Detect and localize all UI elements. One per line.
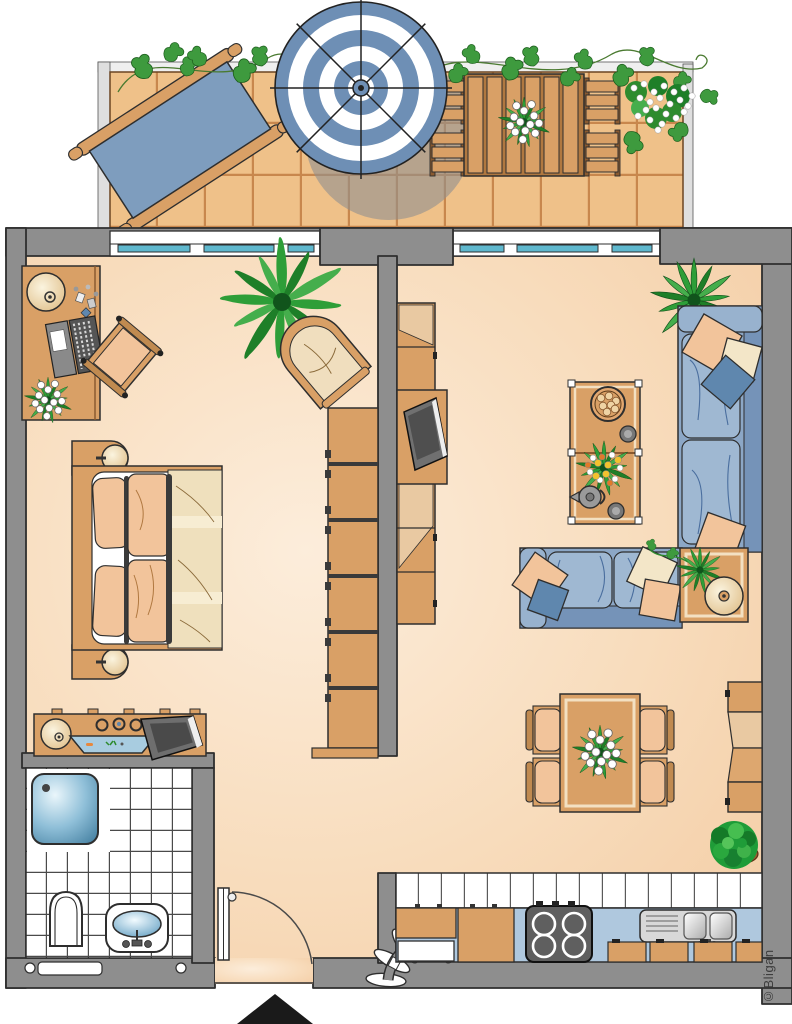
- floorplan-svg: [0, 0, 792, 1024]
- washbasin: [106, 904, 168, 952]
- cup: [608, 503, 624, 519]
- aquarium: [70, 736, 156, 753]
- copyright-text: ©Bligan: [761, 892, 776, 1004]
- wall-divider: [378, 256, 397, 756]
- round-bush-plant: [710, 821, 758, 869]
- wall-bottom-left: [6, 958, 215, 988]
- parasol: [270, 0, 452, 179]
- dresser-knobs: [97, 719, 142, 731]
- tile-backsplash: [396, 873, 762, 908]
- dishwasher-front: [398, 941, 454, 961]
- door-handle-icon: [228, 893, 236, 901]
- cutting-board: [396, 908, 456, 938]
- wall-right: [762, 228, 792, 1004]
- terrace: [66, 0, 718, 239]
- cabinet-fronts: [608, 939, 762, 962]
- entrance-arrow: [237, 994, 313, 1024]
- entrance-threshold: [215, 958, 313, 984]
- double-bed: [72, 441, 222, 679]
- wall-bathroom-right: [192, 768, 214, 963]
- counter-cabinet: [458, 908, 514, 962]
- bathroom: [25, 768, 192, 975]
- fish-icon: [86, 743, 93, 746]
- stove: [526, 901, 592, 962]
- dresser: [34, 709, 206, 761]
- wall-top-right-block: [660, 228, 792, 264]
- cup: [620, 426, 636, 442]
- window-left: [110, 231, 320, 256]
- shower-head-icon: [42, 784, 50, 792]
- shower-tray: [32, 774, 98, 844]
- dining-set: [526, 694, 674, 812]
- bed-blanket: [168, 470, 222, 648]
- window-right: [453, 231, 660, 256]
- coffee-table: [568, 380, 642, 524]
- floorplan-image: ©Bligan: [0, 0, 792, 1024]
- cookie-bowl: [591, 387, 625, 421]
- kitchen: [396, 873, 762, 962]
- desk-lamp: [27, 273, 65, 311]
